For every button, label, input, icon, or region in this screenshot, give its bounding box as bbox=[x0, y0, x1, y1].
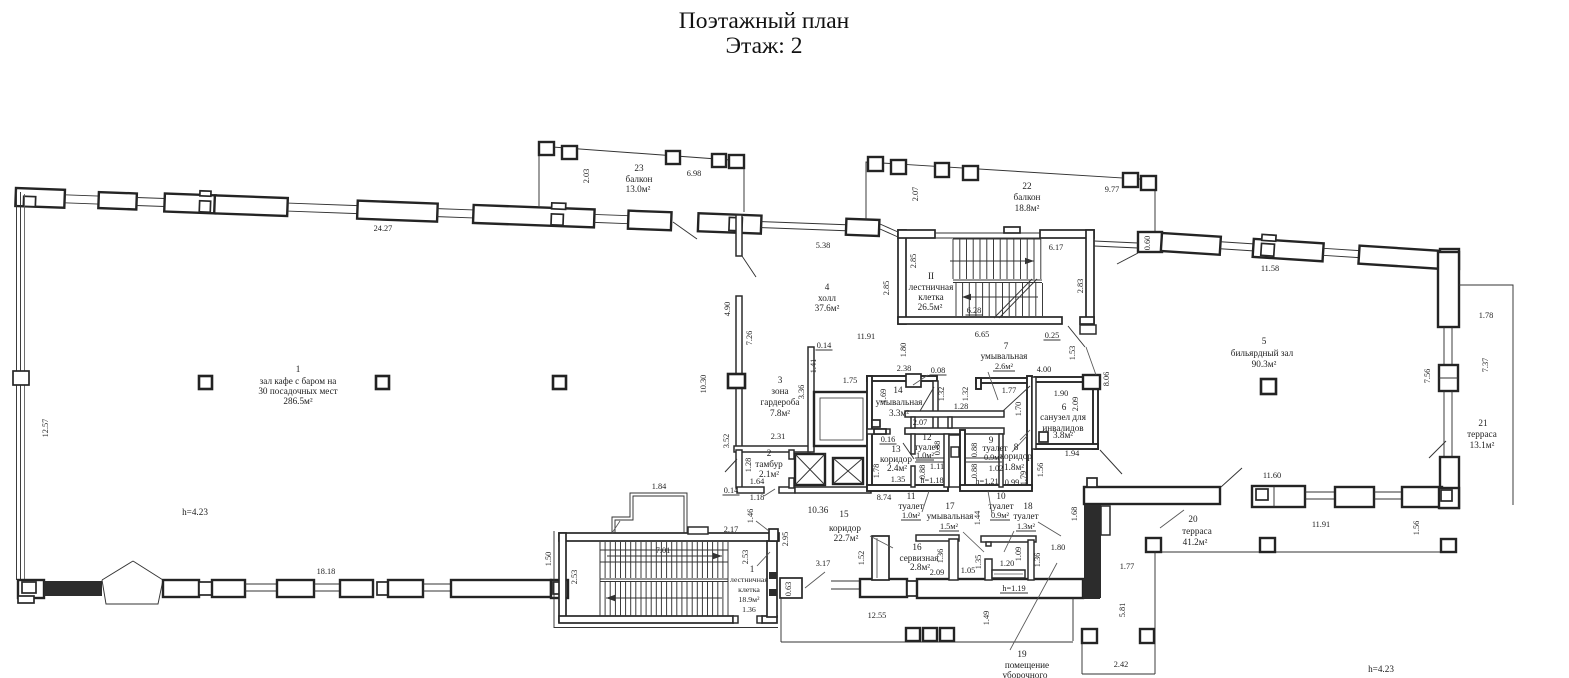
svg-text:8.74: 8.74 bbox=[877, 493, 892, 502]
svg-text:18: 18 bbox=[1023, 501, 1033, 511]
svg-text:зал кафе с баром на: зал кафе с баром на bbox=[260, 376, 337, 386]
svg-text:0.14: 0.14 bbox=[724, 486, 739, 495]
svg-text:18.18: 18.18 bbox=[317, 567, 336, 576]
svg-text:13.1м²: 13.1м² bbox=[1470, 440, 1495, 450]
svg-text:3.17: 3.17 bbox=[816, 559, 831, 568]
svg-text:1.64: 1.64 bbox=[750, 477, 765, 486]
svg-text:балкон: балкон bbox=[626, 174, 653, 184]
svg-text:коридор: коридор bbox=[829, 523, 861, 533]
svg-text:2.8м²: 2.8м² bbox=[910, 562, 930, 572]
svg-text:зона: зона bbox=[771, 386, 788, 396]
svg-text:7.01: 7.01 bbox=[656, 546, 671, 555]
svg-text:2.07: 2.07 bbox=[913, 418, 928, 427]
svg-text:h=4.23: h=4.23 bbox=[1368, 664, 1394, 674]
svg-text:1.78: 1.78 bbox=[872, 464, 881, 479]
svg-text:7: 7 bbox=[1004, 341, 1009, 351]
svg-text:17: 17 bbox=[945, 501, 955, 511]
svg-text:20: 20 bbox=[1188, 514, 1198, 524]
svg-text:помещение: помещение bbox=[1005, 660, 1049, 670]
svg-text:22.7м²: 22.7м² bbox=[834, 533, 859, 543]
svg-text:II: II bbox=[928, 271, 934, 281]
svg-text:1.84: 1.84 bbox=[652, 482, 667, 491]
svg-text:h=1.19: h=1.19 bbox=[1002, 584, 1025, 593]
svg-text:умывальная: умывальная bbox=[981, 351, 1029, 361]
svg-text:4.00: 4.00 bbox=[1037, 365, 1052, 374]
svg-text:1.75: 1.75 bbox=[843, 376, 858, 385]
svg-text:30 посадочных мест: 30 посадочных мест bbox=[258, 386, 337, 396]
svg-text:2.6м²: 2.6м² bbox=[995, 362, 1014, 371]
svg-text:18.9м²: 18.9м² bbox=[739, 595, 761, 604]
svg-text:37.6м²: 37.6м² bbox=[815, 303, 840, 313]
svg-text:балкон: балкон bbox=[1014, 192, 1041, 202]
svg-text:0.88: 0.88 bbox=[970, 443, 979, 458]
svg-text:8.06: 8.06 bbox=[1102, 372, 1111, 387]
svg-text:13: 13 bbox=[891, 444, 901, 454]
svg-text:12.55: 12.55 bbox=[868, 611, 887, 620]
svg-text:холл: холл bbox=[818, 293, 836, 303]
svg-text:5.81: 5.81 bbox=[1118, 603, 1127, 618]
svg-text:1.52: 1.52 bbox=[857, 551, 866, 566]
svg-text:1: 1 bbox=[296, 364, 301, 374]
svg-text:1.0м²: 1.0м² bbox=[916, 451, 935, 460]
svg-text:1.8м²: 1.8м² bbox=[1004, 462, 1024, 472]
svg-text:11: 11 bbox=[907, 491, 916, 501]
svg-text:1.78: 1.78 bbox=[1479, 311, 1494, 320]
svg-text:h=1.21: h=1.21 bbox=[975, 477, 998, 486]
svg-text:2.03: 2.03 bbox=[582, 169, 591, 184]
svg-text:1.11: 1.11 bbox=[930, 462, 944, 471]
svg-text:Этаж: 2: Этаж: 2 bbox=[726, 33, 803, 59]
svg-text:1.94: 1.94 bbox=[1065, 449, 1080, 458]
svg-text:терраса: терраса bbox=[1182, 526, 1212, 536]
svg-text:1.56: 1.56 bbox=[1412, 521, 1421, 536]
svg-text:1.28: 1.28 bbox=[954, 402, 969, 411]
svg-text:16: 16 bbox=[912, 542, 922, 552]
svg-text:2.4м²: 2.4м² bbox=[887, 463, 907, 473]
svg-text:1.36: 1.36 bbox=[936, 549, 945, 564]
svg-text:Поэтажный план: Поэтажный план bbox=[679, 8, 850, 34]
svg-text:4: 4 bbox=[825, 282, 830, 292]
svg-text:11.91: 11.91 bbox=[1312, 520, 1330, 529]
svg-text:24.27: 24.27 bbox=[374, 224, 393, 233]
svg-text:2.95: 2.95 bbox=[781, 532, 790, 547]
svg-text:9.77: 9.77 bbox=[1105, 185, 1120, 194]
svg-text:2.83: 2.83 bbox=[1076, 279, 1085, 294]
svg-text:0.25: 0.25 bbox=[1045, 331, 1060, 340]
svg-text:лестничная: лестничная bbox=[730, 575, 768, 584]
svg-text:6.65: 6.65 bbox=[975, 330, 990, 339]
svg-text:0.14: 0.14 bbox=[817, 341, 832, 350]
svg-text:18.8м²: 18.8м² bbox=[1015, 203, 1040, 213]
svg-text:0.08: 0.08 bbox=[931, 366, 946, 375]
svg-text:1.44: 1.44 bbox=[973, 510, 982, 525]
svg-text:1.32: 1.32 bbox=[937, 387, 946, 402]
svg-text:2: 2 bbox=[767, 448, 772, 458]
svg-text:26.5м²: 26.5м² bbox=[918, 302, 943, 312]
svg-text:0.9м²: 0.9м² bbox=[991, 511, 1010, 520]
svg-text:0.16: 0.16 bbox=[881, 435, 896, 444]
svg-text:10.30: 10.30 bbox=[699, 375, 708, 394]
svg-text:1.77: 1.77 bbox=[1002, 386, 1017, 395]
svg-text:6: 6 bbox=[1062, 402, 1067, 412]
svg-text:1.09: 1.09 bbox=[1014, 547, 1023, 562]
svg-text:7.56: 7.56 bbox=[1423, 369, 1432, 384]
svg-text:2.53: 2.53 bbox=[570, 570, 579, 585]
svg-text:12.57: 12.57 bbox=[41, 419, 50, 438]
svg-text:уборочного: уборочного bbox=[1003, 670, 1048, 678]
svg-text:2.38: 2.38 bbox=[897, 364, 912, 373]
svg-text:1.50: 1.50 bbox=[544, 552, 553, 567]
svg-text:1.80: 1.80 bbox=[899, 343, 908, 358]
svg-text:11.58: 11.58 bbox=[1261, 264, 1279, 273]
svg-text:1.56: 1.56 bbox=[1036, 463, 1045, 478]
svg-text:2.07: 2.07 bbox=[911, 187, 920, 202]
svg-text:6.17: 6.17 bbox=[1049, 243, 1064, 252]
svg-text:10: 10 bbox=[996, 491, 1006, 501]
svg-text:1.41: 1.41 bbox=[809, 359, 818, 374]
svg-text:15: 15 bbox=[839, 509, 849, 519]
svg-text:1.90: 1.90 bbox=[1054, 389, 1069, 398]
svg-text:лестничная: лестничная bbox=[909, 282, 954, 292]
svg-text:1.35: 1.35 bbox=[891, 475, 906, 484]
svg-text:41.2м²: 41.2м² bbox=[1183, 537, 1208, 547]
svg-text:1.53: 1.53 bbox=[1068, 346, 1077, 361]
svg-text:23: 23 bbox=[634, 163, 644, 173]
svg-text:90.3м²: 90.3м² bbox=[1252, 359, 1277, 369]
svg-text:2.31: 2.31 bbox=[771, 432, 786, 441]
svg-text:клетка: клетка bbox=[918, 292, 944, 302]
svg-text:1.0м²: 1.0м² bbox=[902, 511, 921, 520]
svg-text:7.37: 7.37 bbox=[1481, 358, 1490, 373]
svg-text:1.49: 1.49 bbox=[982, 611, 991, 626]
svg-text:0.63: 0.63 bbox=[784, 582, 793, 597]
svg-text:21: 21 bbox=[1478, 418, 1488, 428]
svg-text:1.79: 1.79 bbox=[1019, 471, 1028, 486]
svg-text:1.77: 1.77 bbox=[1120, 562, 1135, 571]
svg-text:тамбур: тамбур bbox=[755, 459, 783, 469]
svg-text:2.09: 2.09 bbox=[1071, 397, 1080, 412]
svg-text:1.46: 1.46 bbox=[746, 509, 755, 524]
svg-text:2.42: 2.42 bbox=[1114, 660, 1129, 669]
svg-text:клетка: клетка bbox=[738, 585, 760, 594]
svg-text:14: 14 bbox=[893, 385, 903, 395]
svg-text:1.70: 1.70 bbox=[1014, 402, 1023, 417]
svg-text:5.38: 5.38 bbox=[816, 241, 831, 250]
svg-text:туалет: туалет bbox=[1013, 511, 1038, 521]
svg-text:2.85: 2.85 bbox=[909, 254, 918, 269]
svg-text:22: 22 bbox=[1022, 181, 1032, 191]
svg-text:1.68: 1.68 bbox=[1070, 507, 1079, 522]
svg-text:туалет: туалет bbox=[898, 501, 923, 511]
svg-text:1: 1 bbox=[750, 564, 755, 574]
svg-text:туалет: туалет bbox=[988, 501, 1013, 511]
svg-text:4.90: 4.90 bbox=[723, 302, 732, 317]
svg-text:1.69: 1.69 bbox=[879, 389, 888, 404]
svg-text:2.85: 2.85 bbox=[882, 281, 891, 296]
svg-text:5: 5 bbox=[1262, 336, 1267, 346]
svg-text:1.02: 1.02 bbox=[989, 464, 1004, 473]
svg-text:286.5м²: 286.5м² bbox=[283, 396, 312, 406]
svg-text:1.18: 1.18 bbox=[750, 493, 765, 502]
svg-text:19: 19 bbox=[1017, 649, 1027, 659]
svg-text:2.53: 2.53 bbox=[741, 550, 750, 565]
svg-text:1.5м²: 1.5м² bbox=[940, 522, 959, 531]
svg-text:3.36: 3.36 bbox=[797, 385, 806, 400]
svg-text:1.20: 1.20 bbox=[1000, 559, 1015, 568]
svg-text:11.91: 11.91 bbox=[857, 332, 875, 341]
svg-text:0.60: 0.60 bbox=[1143, 236, 1152, 251]
svg-text:10.36: 10.36 bbox=[808, 505, 829, 515]
svg-text:бильярдный зал: бильярдный зал bbox=[1231, 348, 1294, 358]
svg-text:санузел для: санузел для bbox=[1040, 412, 1087, 422]
svg-text:11.60: 11.60 bbox=[1263, 471, 1281, 480]
svg-text:1.35: 1.35 bbox=[974, 555, 983, 570]
svg-text:терраса: терраса bbox=[1467, 429, 1497, 439]
svg-text:6.28: 6.28 bbox=[967, 306, 982, 315]
svg-text:1.32: 1.32 bbox=[961, 387, 970, 402]
svg-text:1.80: 1.80 bbox=[1051, 543, 1066, 552]
svg-text:3.3м²: 3.3м² bbox=[889, 408, 909, 418]
svg-text:7.26: 7.26 bbox=[745, 331, 754, 346]
svg-text:13.0м²: 13.0м² bbox=[626, 184, 651, 194]
svg-text:h=4.23: h=4.23 bbox=[182, 507, 208, 517]
svg-text:h=1.18: h=1.18 bbox=[920, 476, 943, 485]
svg-text:коридор: коридор bbox=[1000, 451, 1032, 461]
svg-text:3: 3 bbox=[778, 375, 783, 385]
svg-text:2.17: 2.17 bbox=[724, 525, 739, 534]
svg-text:7.8м²: 7.8м² bbox=[770, 408, 790, 418]
svg-text:1.3м²: 1.3м² bbox=[1017, 522, 1036, 531]
svg-text:6.98: 6.98 bbox=[687, 169, 702, 178]
svg-text:1.36: 1.36 bbox=[1033, 553, 1042, 568]
svg-text:1.28: 1.28 bbox=[744, 458, 753, 473]
svg-text:1.36: 1.36 bbox=[742, 605, 756, 614]
svg-text:2.09: 2.09 bbox=[930, 568, 945, 577]
svg-text:0.88: 0.88 bbox=[933, 441, 942, 456]
svg-text:3.52: 3.52 bbox=[722, 434, 731, 449]
svg-text:умывальная: умывальная bbox=[927, 511, 975, 521]
svg-text:гардероба: гардероба bbox=[760, 397, 799, 407]
svg-text:3.8м²: 3.8м² bbox=[1053, 430, 1073, 440]
svg-text:0.99: 0.99 bbox=[1005, 478, 1020, 487]
svg-text:12: 12 bbox=[922, 432, 932, 442]
